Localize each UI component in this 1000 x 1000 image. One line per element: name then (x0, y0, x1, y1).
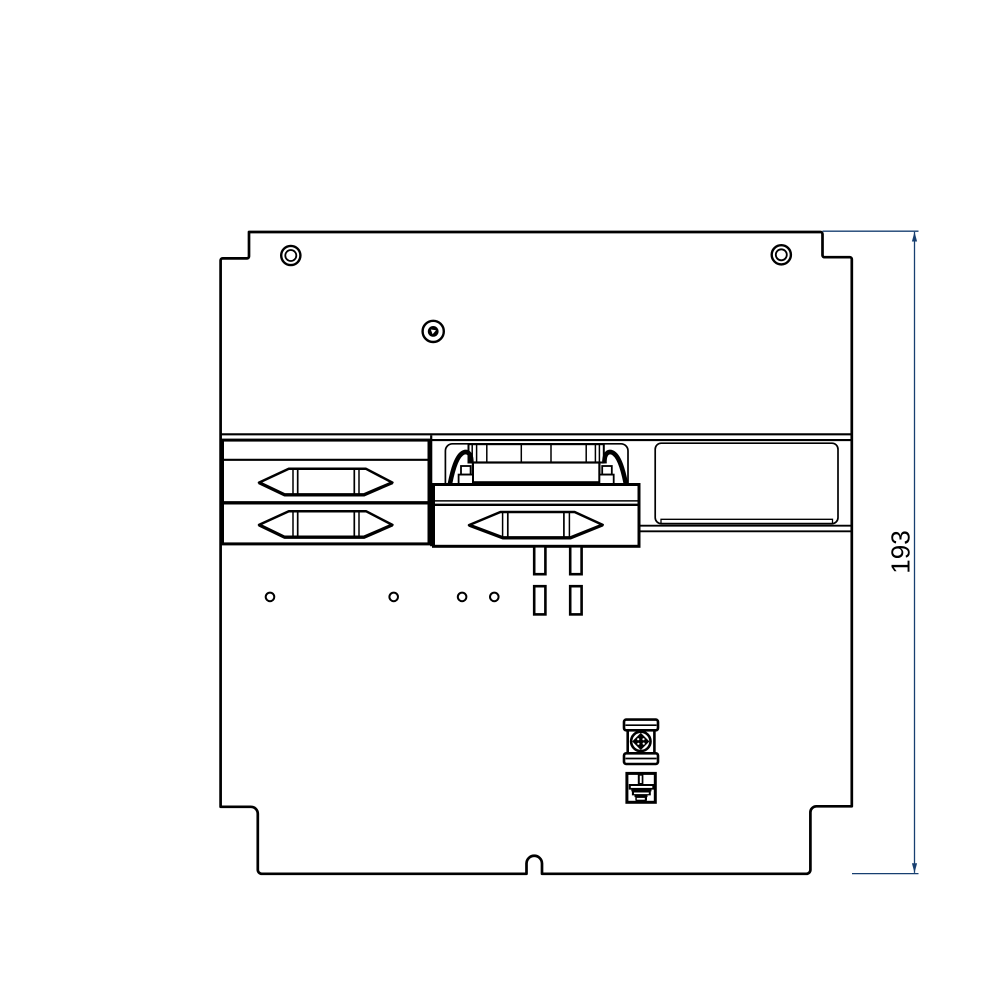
svg-text:193: 193 (886, 530, 916, 573)
